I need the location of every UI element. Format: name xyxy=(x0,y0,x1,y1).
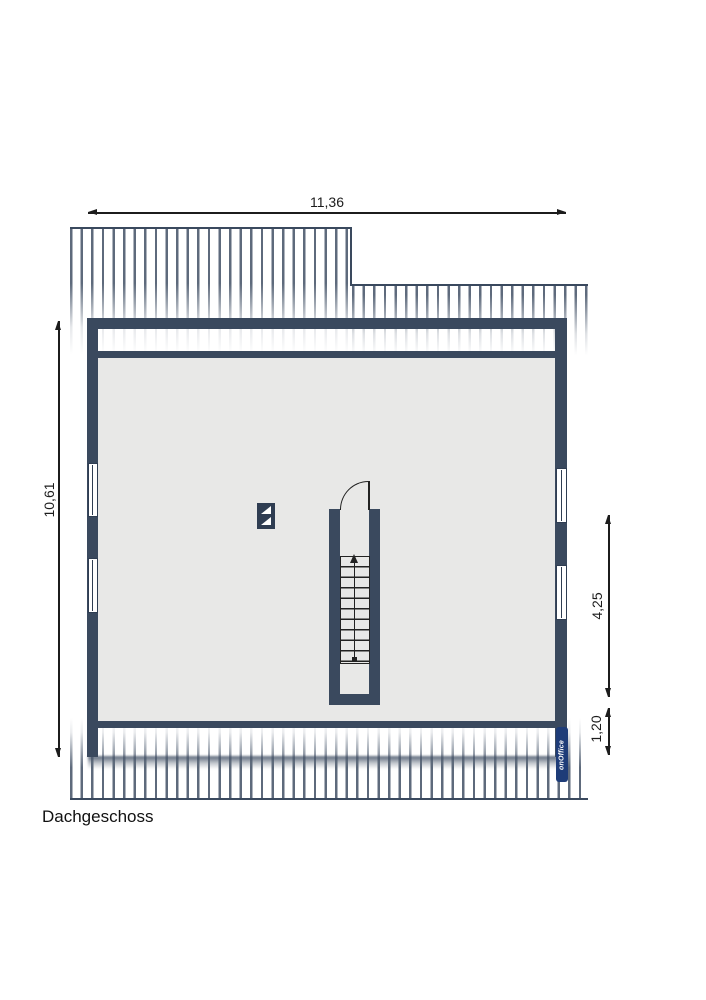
chimney-icon xyxy=(257,503,275,529)
arrowhead-down-icon xyxy=(55,748,61,757)
chimney-flag-icon xyxy=(261,517,271,525)
window-pane-line xyxy=(92,560,93,611)
stairwell-wall-right xyxy=(369,509,380,705)
wall-top-outer xyxy=(88,318,566,329)
hatch-fade xyxy=(70,229,352,358)
window-right-1 xyxy=(556,468,567,523)
floor-title: Dachgeschoss xyxy=(42,807,154,827)
stairwell-wall-bottom xyxy=(329,694,380,705)
stair-run-line xyxy=(354,557,356,660)
wall-right xyxy=(555,318,567,757)
dimension-label-top: 11,36 xyxy=(310,194,344,210)
window-right-2 xyxy=(556,565,567,620)
roof-hatching-top-left xyxy=(70,227,352,358)
watermark-label: onOffice xyxy=(559,740,566,770)
window-pane-line xyxy=(92,465,93,515)
eave-wall-shadow xyxy=(88,756,566,769)
wall-top-inner xyxy=(88,351,566,358)
stairwell-wall-left xyxy=(329,509,340,705)
dimension-line-left xyxy=(58,321,60,757)
arrowhead-down-icon xyxy=(605,746,611,755)
stair-start-dot xyxy=(352,657,357,662)
arrowhead-left-icon xyxy=(88,209,97,215)
dimension-line-top xyxy=(88,212,566,214)
arrowhead-up-icon xyxy=(605,708,611,717)
watermark-badge: onOffice xyxy=(556,727,568,782)
arrowhead-up-icon xyxy=(55,321,61,330)
window-left-2 xyxy=(88,558,98,613)
attic-room xyxy=(98,358,555,721)
stair-direction-arrow-icon xyxy=(350,554,358,563)
roof-edge-step-line xyxy=(350,227,353,286)
arrowhead-down-icon xyxy=(605,688,611,697)
dimension-line-right-upper xyxy=(608,515,610,697)
dimension-label-right-lower: 1,20 xyxy=(588,715,604,742)
arrowhead-up-icon xyxy=(605,515,611,524)
window-left-1 xyxy=(88,463,98,517)
floorplan-canvas: 11,36 10,61 4,25 1,20 Dachgeschoss onOff… xyxy=(0,0,706,1000)
chimney-flag-icon xyxy=(261,506,271,514)
dimension-label-left: 10,61 xyxy=(41,482,57,517)
arrowhead-right-icon xyxy=(557,209,566,215)
wall-bottom-inner xyxy=(88,721,566,728)
dimension-label-right-upper: 4,25 xyxy=(589,592,605,619)
wall-left xyxy=(87,318,98,757)
window-pane-line xyxy=(561,470,562,521)
window-pane-line xyxy=(561,567,562,618)
